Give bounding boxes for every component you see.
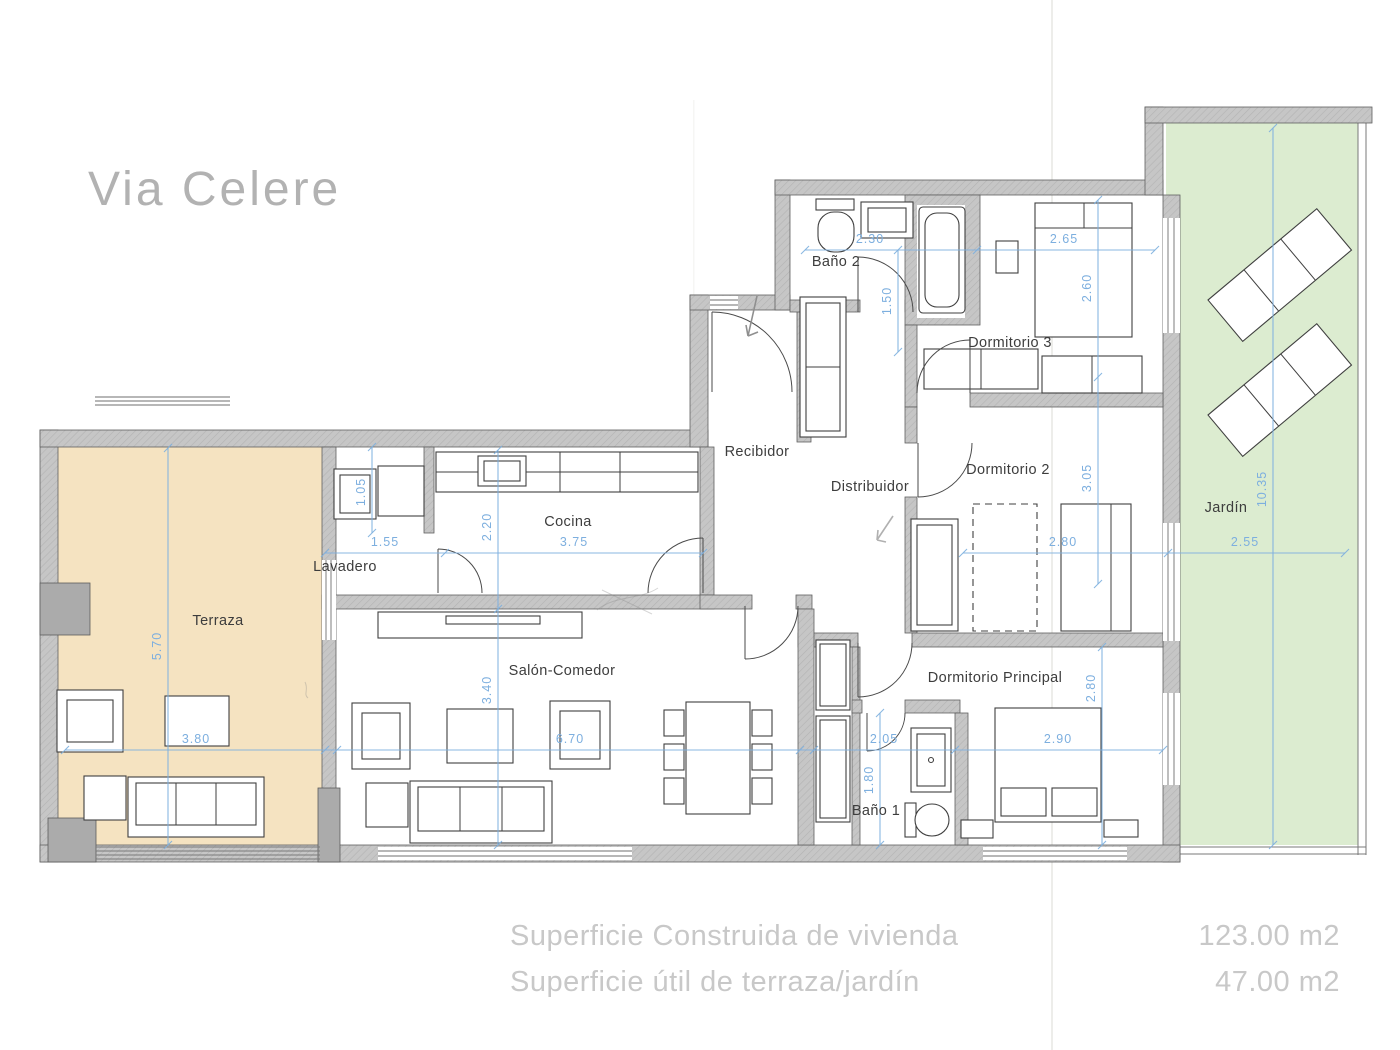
summary-line1-label: Superficie Construida de vivienda bbox=[510, 920, 959, 952]
bano1-label: Baño 1 bbox=[852, 803, 900, 819]
floorplan-page: 2.30 2.65 1.50 2.60 3.05 1.55 3.75 bbox=[0, 0, 1400, 1050]
recibidor-wardrobe bbox=[800, 297, 846, 437]
lavadero-appliances bbox=[334, 466, 424, 519]
dim-mid-chain-left: 1.55 3.75 bbox=[321, 535, 707, 557]
bano1-fixtures bbox=[905, 728, 951, 837]
jardin-label: Jardín bbox=[1205, 500, 1248, 516]
svg-text:2.30: 2.30 bbox=[856, 232, 884, 246]
corridor-closets bbox=[816, 640, 850, 822]
svg-text:6.70: 6.70 bbox=[556, 732, 584, 746]
svg-text:2.80: 2.80 bbox=[1084, 674, 1098, 702]
lavadero-label: Lavadero bbox=[313, 559, 377, 575]
floor-plan-svg: 2.30 2.65 1.50 2.60 3.05 1.55 3.75 bbox=[0, 0, 1400, 1050]
cocina-label: Cocina bbox=[544, 514, 592, 530]
summary-line1-value: 123.00 m2 bbox=[1198, 920, 1340, 952]
svg-text:2.60: 2.60 bbox=[1080, 274, 1094, 302]
salon-label: Salón-Comedor bbox=[509, 663, 616, 679]
svg-text:1.80: 1.80 bbox=[862, 766, 876, 794]
salon-furniture bbox=[352, 612, 772, 843]
svg-text:2.55: 2.55 bbox=[1231, 535, 1259, 549]
distribuidor-label: Distribuidor bbox=[831, 479, 909, 495]
kitchen-counter bbox=[436, 452, 698, 492]
dim-bano1-vertical: 1.80 bbox=[862, 709, 884, 849]
svg-text:2.65: 2.65 bbox=[1050, 232, 1078, 246]
surface-summary: Superficie Construida de vivienda 123.00… bbox=[510, 920, 1340, 998]
svg-text:2.90: 2.90 bbox=[1044, 732, 1072, 746]
svg-text:3.80: 3.80 bbox=[182, 732, 210, 746]
svg-text:2.05: 2.05 bbox=[870, 732, 898, 746]
summary-line2-label: Superficie útil de terraza/jardín bbox=[510, 966, 920, 998]
brand-logo: Via Celere bbox=[88, 163, 341, 216]
dormitorio-principal-label: Dormitorio Principal bbox=[928, 670, 1063, 686]
dormitorio3-label: Dormitorio 3 bbox=[968, 335, 1052, 351]
svg-text:3.40: 3.40 bbox=[480, 676, 494, 704]
svg-text:2.20: 2.20 bbox=[480, 513, 494, 541]
dormitorio2-label: Dormitorio 2 bbox=[966, 462, 1050, 478]
svg-text:1.50: 1.50 bbox=[880, 287, 894, 315]
dormp-furniture bbox=[961, 708, 1138, 838]
svg-text:1.05: 1.05 bbox=[354, 478, 368, 506]
svg-text:5.70: 5.70 bbox=[150, 632, 164, 660]
svg-text:10.35: 10.35 bbox=[1255, 471, 1269, 507]
svg-text:2.80: 2.80 bbox=[1049, 535, 1077, 549]
svg-text:1.55: 1.55 bbox=[371, 535, 399, 549]
terraza-label: Terraza bbox=[192, 613, 244, 629]
scan-creases bbox=[693, 0, 1053, 1050]
bano2-label: Baño 2 bbox=[812, 254, 860, 270]
distribuidor-arrow bbox=[877, 516, 893, 542]
summary-line2-value: 47.00 m2 bbox=[1215, 966, 1340, 998]
svg-text:3.05: 3.05 bbox=[1080, 464, 1094, 492]
recibidor-label: Recibidor bbox=[725, 444, 790, 460]
svg-text:3.75: 3.75 bbox=[560, 535, 588, 549]
